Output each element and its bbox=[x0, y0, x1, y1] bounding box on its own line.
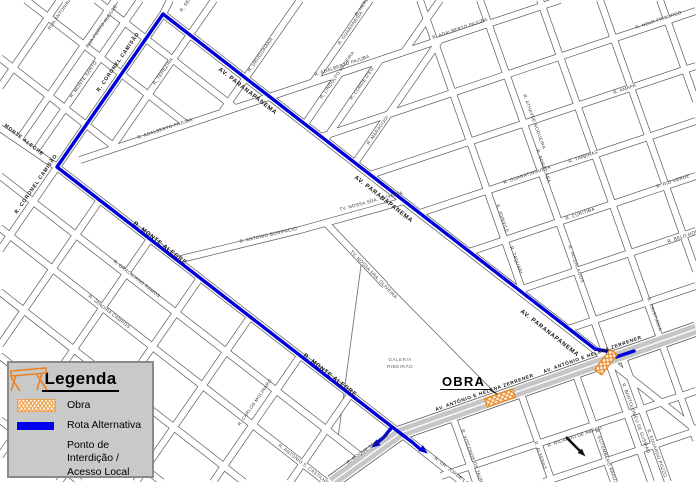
street-label: R. MONTE ALEGRE bbox=[302, 353, 358, 399]
obra-hatch-icon bbox=[17, 399, 57, 412]
street-label: R. URUGUAIANA bbox=[247, 36, 275, 72]
street bbox=[600, 0, 696, 271]
street-label: R. ANTONIO S. CASTILHO bbox=[277, 443, 330, 482]
obra-callout-label: OBRA bbox=[442, 374, 485, 389]
legend-box: Legenda Obra Rota Alternativa Ponto de I… bbox=[7, 361, 154, 478]
legend-item-label: Rota Alternativa bbox=[67, 419, 141, 432]
street bbox=[420, 121, 696, 213]
galeria-ribeirao-label: GALERIA bbox=[388, 357, 412, 363]
street-label: R. SERGIPE bbox=[179, 0, 200, 13]
street-label: R. TEREZINA bbox=[152, 56, 175, 85]
galeria-ribeirao-label: RIBEIRÃO bbox=[387, 363, 413, 370]
legend-item-label: Obra bbox=[67, 399, 90, 412]
street-label: R. GUARANESIA bbox=[337, 10, 364, 46]
detour-map-page: RUA ANTONINARUA PORTO ALEGRER. MONTE SAN… bbox=[0, 0, 696, 482]
legend-item-rota: Rota Alternativa bbox=[17, 419, 152, 432]
legend-item-obra: Obra bbox=[17, 399, 152, 412]
legend-title: Legenda bbox=[42, 369, 118, 392]
route-line-icon bbox=[17, 422, 57, 430]
legend-item-label: Ponto de Interdição / Acesso Local bbox=[67, 439, 152, 478]
legend-item-ponto: Ponto de Interdição / Acesso Local bbox=[17, 439, 152, 478]
street bbox=[20, 0, 115, 138]
street-label: TV. NOSSA SRA. OLIVEIRA bbox=[349, 249, 398, 300]
street bbox=[0, 0, 60, 87]
